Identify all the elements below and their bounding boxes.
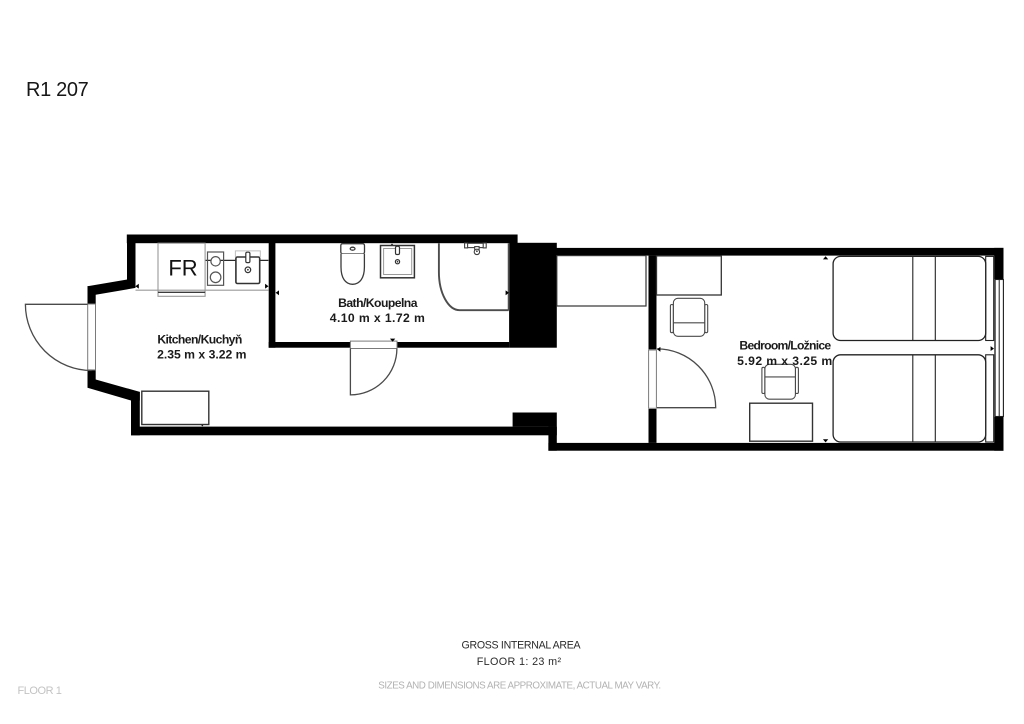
svg-text:SIZES AND DIMENSIONS ARE APPRO: SIZES AND DIMENSIONS ARE APPROXIMATE, AC… [378, 680, 660, 691]
svg-text:Bath/Koupelna: Bath/Koupelna [338, 296, 418, 310]
svg-text:R1 207: R1 207 [26, 79, 89, 101]
svg-text:GROSS INTERNAL AREA: GROSS INTERNAL AREA [462, 640, 582, 652]
svg-text:5.92 m x 3.25 m: 5.92 m x 3.25 m [737, 354, 832, 368]
svg-text:FLOOR 1: FLOOR 1 [18, 685, 62, 697]
svg-text:FLOOR 1: 23 m²: FLOOR 1: 23 m² [477, 656, 562, 668]
svg-text:4.10 m x 1.72 m: 4.10 m x 1.72 m [330, 311, 425, 325]
svg-text:FR: FR [168, 255, 197, 280]
svg-text:Bedroom/Ložnice: Bedroom/Ložnice [739, 339, 831, 353]
svg-text:Kitchen/Kuchyň: Kitchen/Kuchyň [157, 332, 242, 346]
svg-text:2.35 m x 3.22 m: 2.35 m x 3.22 m [157, 347, 247, 361]
